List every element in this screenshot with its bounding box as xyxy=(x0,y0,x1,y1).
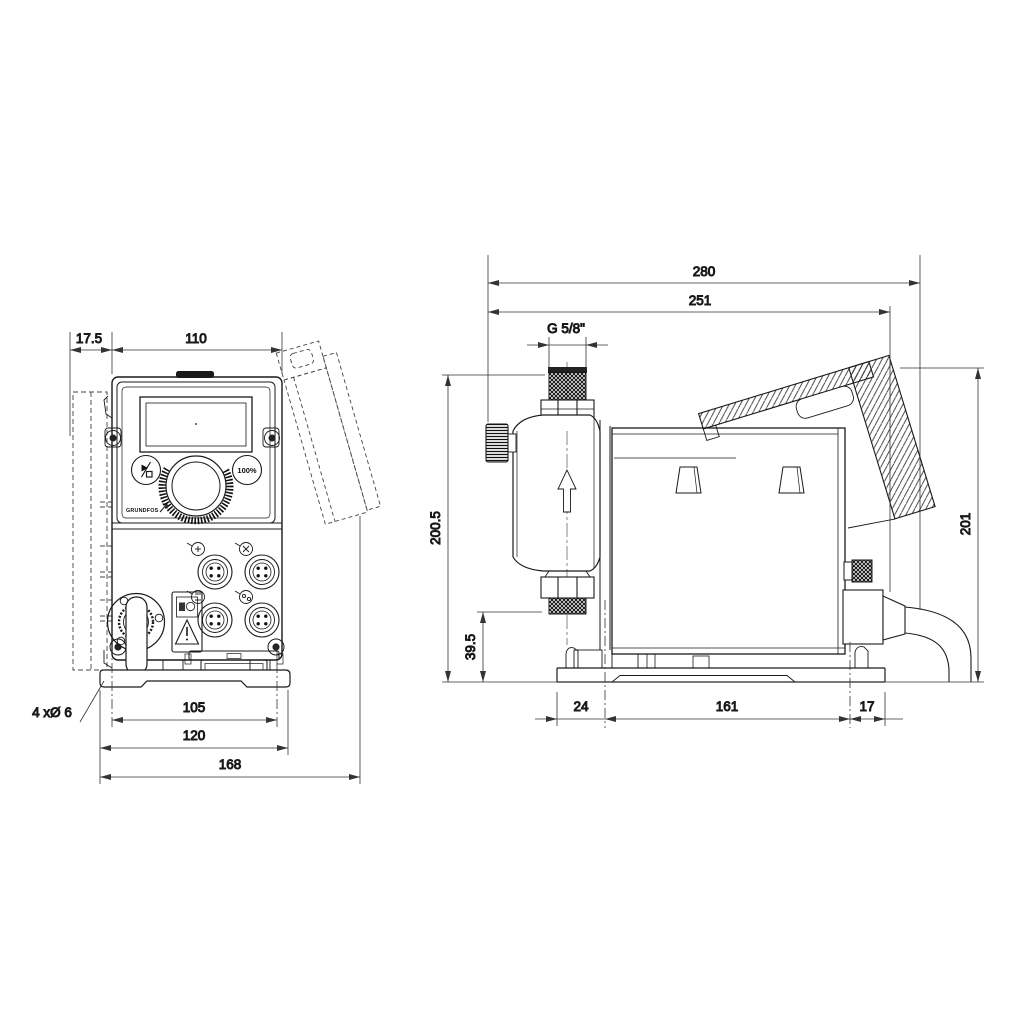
housing-top-cap xyxy=(176,371,214,378)
capacity-100-button: 100% xyxy=(233,456,262,485)
dim-rear-offset: 17 xyxy=(859,699,874,714)
dim-total-width: 168 xyxy=(219,757,242,772)
capacity-100-label: 100% xyxy=(237,466,257,475)
wall-plate-hook-bottom xyxy=(104,650,112,668)
top-thread xyxy=(549,372,586,400)
dim-offset: 17.5 xyxy=(76,331,102,346)
dim-connection-height: 39.5 xyxy=(463,634,478,660)
rear-stud xyxy=(852,560,872,582)
dimensional-drawing-svg: 100% GRUNDFOS xyxy=(0,0,1024,1024)
head-backplate xyxy=(600,420,610,650)
dim-hole-spacing-side: 161 xyxy=(716,699,739,714)
holes-label: 4 xØ 6 xyxy=(32,705,72,720)
thread-label: G 5/8" xyxy=(547,321,585,336)
dim-hole-spacing: 105 xyxy=(183,700,206,715)
brand-wordmark: GRUNDFOS xyxy=(126,508,159,514)
rotated-cover-outline xyxy=(276,337,381,524)
dim-total-length: 280 xyxy=(693,264,716,279)
cable-gland xyxy=(843,590,905,644)
dim-length: 251 xyxy=(689,293,712,308)
dim-front-offset: 24 xyxy=(573,699,589,714)
display-dot xyxy=(195,423,197,425)
technical-drawing: 100% GRUNDFOS xyxy=(0,0,1024,1024)
pump-body-side xyxy=(612,428,845,654)
flow-arrow-icon xyxy=(558,470,576,512)
dim-plate-width: 120 xyxy=(183,728,206,743)
dosing-head xyxy=(513,415,600,571)
bottom-thread xyxy=(549,598,586,614)
start-stop-button xyxy=(132,456,161,485)
wall-plate-hook-top xyxy=(104,396,112,418)
rear-stud-cap xyxy=(844,562,852,580)
power-cable xyxy=(126,597,147,674)
support-tab-left xyxy=(163,660,183,670)
wall-plate-outline xyxy=(73,392,112,670)
side-view: 280 251 G 5/8" 200.5 39.5 201 24 161 17 xyxy=(428,255,984,728)
dim-width: 110 xyxy=(185,331,207,346)
front-view: 100% GRUNDFOS xyxy=(32,331,381,784)
bottom-union-nut xyxy=(541,577,594,598)
dim-height: 200.5 xyxy=(428,511,443,545)
mains-cable xyxy=(905,607,971,682)
deaeration-valve xyxy=(486,424,516,462)
base-plate-front xyxy=(100,670,290,687)
dim-total-height: 201 xyxy=(958,513,973,536)
